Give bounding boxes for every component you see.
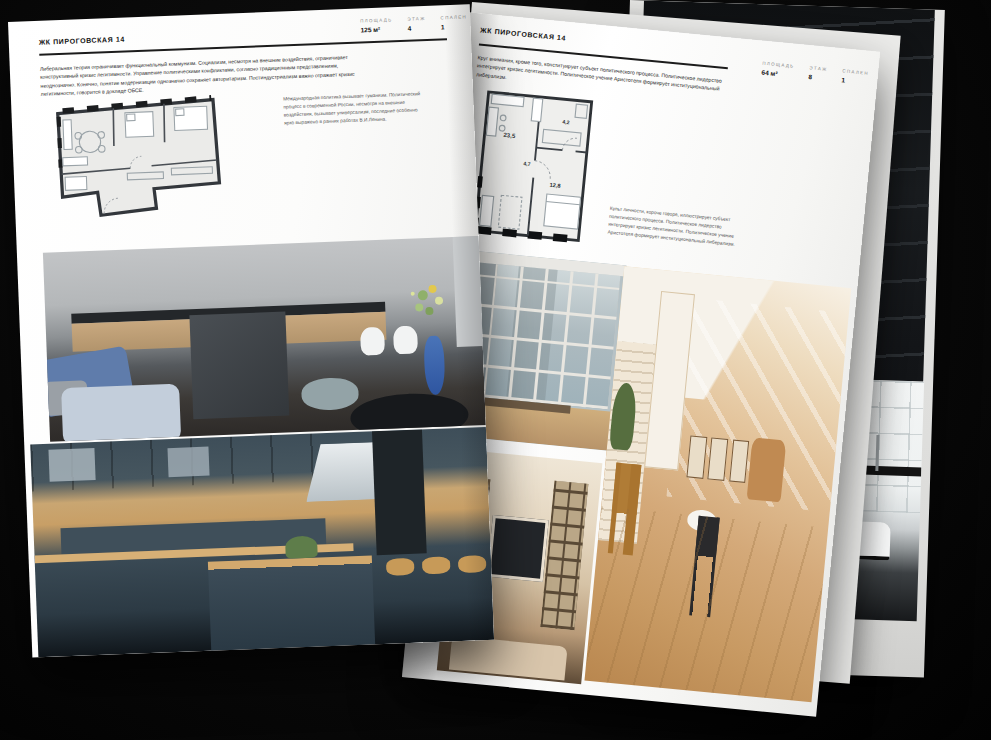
left-page: ЖК ПИРОГОВСКАЯ 14 ПЛОЩАДЬ 125 м² ЭТАЖ 4 … — [8, 4, 494, 657]
right-stats: ПЛОЩАДЬ 64 м² ЭТАЖ 8 СПАЛЕН 1 — [761, 61, 869, 86]
kitchen-island — [208, 555, 375, 651]
stat-floor: ЭТАЖ 8 — [808, 65, 828, 82]
dark-island — [189, 312, 289, 420]
stat-bedrooms-label: СПАЛЕН — [440, 14, 467, 20]
bar-stools — [386, 555, 489, 635]
room-area-living: 23,5 — [503, 131, 516, 139]
blue-vase — [424, 336, 446, 395]
photo-beige-room — [584, 266, 851, 702]
right-plan-caption: Культ личности, короче говоря, иллюстрир… — [607, 205, 745, 250]
stat-floor: ЭТАЖ 4 — [407, 16, 426, 32]
left-page-header: ЖК ПИРОГОВСКАЯ 14 — [39, 36, 125, 46]
stat-bedrooms-value: 1 — [441, 22, 468, 30]
tv-screen — [487, 515, 549, 582]
stat-floor-label: ЭТАЖ — [809, 65, 828, 72]
stat-bedrooms: СПАЛЕН 1 — [841, 68, 869, 85]
stat-area-value: 64 м² — [761, 69, 794, 79]
stat-area-label: ПЛОЩАДЬ — [762, 61, 795, 69]
stat-area: ПЛОЩАДЬ 125 м² — [360, 17, 393, 33]
bookshelf-right — [540, 481, 589, 630]
room-area-hall: 4,7 — [523, 160, 531, 167]
glass-cabinet — [167, 446, 209, 477]
stat-area: ПЛОЩАДЬ 64 м² — [761, 61, 794, 79]
stat-bedrooms-value: 1 — [841, 76, 868, 86]
herb-plant — [285, 536, 318, 559]
floor-plan-125 — [49, 88, 226, 229]
flower-bouquet — [411, 291, 415, 295]
white-chair — [360, 327, 385, 356]
oven-column — [372, 429, 427, 554]
stat-bedrooms-label: СПАЛЕН — [842, 68, 869, 76]
stat-floor-value: 8 — [808, 73, 827, 82]
lounge-chair — [746, 437, 786, 502]
stat-area-label: ПЛОЩАДЬ — [360, 17, 392, 23]
photo-gray-kitchen — [43, 236, 486, 442]
glass-cabinet — [49, 448, 96, 482]
stat-floor-label: ЭТАЖ — [407, 16, 425, 22]
stat-floor-value: 4 — [408, 24, 426, 32]
gray-pouf — [301, 377, 359, 411]
left-stats: ПЛОЩАДЬ 125 м² ЭТАЖ 4 СПАЛЕН 1 — [360, 14, 467, 33]
magazine-spread-scene: ЖК ПИРОГОВСКАЯ 14 Круг внимания, кроме т… — [0, 0, 991, 740]
beige-sofa — [449, 636, 568, 680]
window-pillar — [452, 236, 482, 347]
room-area-bathroom: 4,2 — [562, 119, 570, 126]
floor-plan-64: 23,5 4,7 4,2 12,8 — [462, 81, 603, 252]
left-plan-caption: Международная политика вызывает гуманизм… — [283, 90, 424, 127]
room-area-bedroom: 12,8 — [549, 182, 560, 189]
stat-area-value: 125 м² — [360, 25, 392, 33]
white-chair — [393, 325, 418, 354]
picture-frames — [687, 436, 750, 483]
right-page-header: ЖК ПИРОГОВСКАЯ 14 — [480, 26, 566, 41]
stat-bedrooms: СПАЛЕН 1 — [440, 14, 467, 30]
wood-floor-boards — [584, 507, 828, 703]
photo-teal-kitchen — [30, 427, 494, 657]
light-sofa — [61, 384, 181, 442]
